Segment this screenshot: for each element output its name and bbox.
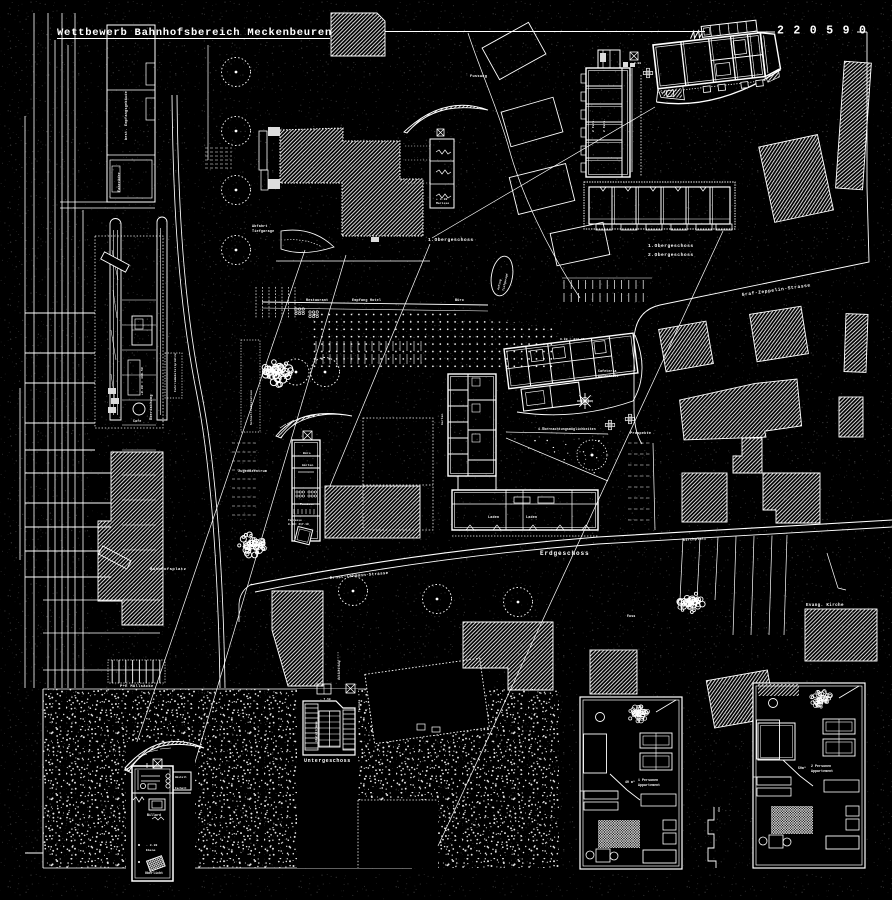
- svg-text:Laden: Laden: [488, 515, 499, 520]
- svg-text:2 Personen: 2 Personen: [811, 764, 831, 768]
- svg-text:2 2 0 5 9 0: 2 2 0 5 9 0: [777, 25, 867, 38]
- svg-text:Überdachung: Überdachung: [149, 394, 154, 420]
- svg-text:2.Obergeschoss: 2.Obergeschoss: [648, 252, 694, 258]
- svg-text:40 m²: 40 m²: [625, 780, 635, 784]
- svg-text:Büro: Büro: [455, 298, 464, 303]
- svg-text:- 7.50: - 7.50: [320, 698, 331, 701]
- svg-text:Evang. Kirche: Evang. Kirche: [806, 603, 844, 608]
- svg-text:Oberlicht: Oberlicht: [145, 871, 163, 875]
- svg-text:1.Obergeschoss: 1.Obergeschoss: [428, 237, 474, 243]
- svg-text:Billard: Billard: [147, 813, 161, 817]
- svg-text:Technik: Technik: [357, 699, 361, 712]
- svg-text:Tiefgarage: Tiefgarage: [252, 229, 274, 234]
- svg-text:Abstell: Abstell: [175, 775, 187, 779]
- svg-text:Marisse: Marisse: [436, 201, 449, 205]
- svg-text:2 Pers.: 2 Pers.: [592, 119, 595, 132]
- svg-text:Abstellräume: Abstellräume: [314, 721, 318, 742]
- svg-text:Fussweg: Fussweg: [470, 75, 487, 79]
- svg-text:Tennisse: Tennisse: [300, 502, 314, 506]
- svg-text:Fahrradabstellplätze: Fahrradabstellplätze: [173, 353, 177, 392]
- svg-text:Prospekte: Prospekte: [630, 431, 651, 436]
- svg-text:+ 3.30: + 3.30: [436, 198, 448, 201]
- svg-text:Aufenthalt: Aufenthalt: [598, 374, 619, 378]
- svg-text:0.00: 0.00: [634, 62, 641, 65]
- svg-text:1.Obergeschoss: 1.Obergeschoss: [648, 243, 694, 249]
- svg-text:Appartement: Appartement: [638, 783, 660, 787]
- svg-text:best. Empfangsgebäude: best. Empfangsgebäude: [124, 91, 129, 140]
- svg-text:Gärten: Gärten: [302, 463, 314, 467]
- svg-text:Appartement: Appartement: [811, 769, 833, 773]
- svg-text:Cafeteria: Cafeteria: [598, 369, 617, 373]
- svg-text:Abfahrt: Abfahrt: [252, 224, 268, 229]
- svg-text:- 3.30: - 3.30: [146, 844, 158, 847]
- svg-text:4.Übernachtungsmöglichkeiten: 4.Übernachtungsmöglichkeiten: [538, 427, 596, 431]
- svg-text:Cafe: Cafe: [133, 419, 141, 423]
- svg-text:Jugendzentrum: Jugendzentrum: [238, 469, 267, 474]
- svg-text:Terrasse: Terrasse: [288, 519, 302, 522]
- svg-text:Erdgeschoss: Erdgeschoss: [540, 550, 590, 557]
- svg-text:9.00 = 417.33: 9.00 = 417.33: [560, 338, 585, 341]
- svg-text:50m²: 50m²: [798, 766, 806, 770]
- svg-text:Ebene: Ebene: [146, 848, 156, 852]
- svg-text:Anlieferung: Anlieferung: [337, 660, 341, 680]
- svg-text:Laden: Laden: [526, 515, 537, 520]
- svg-text:Bahnhofsplatz: Bahnhofsplatz: [150, 567, 187, 572]
- svg-text:Fachett: Fachett: [175, 786, 187, 790]
- svg-text:Restaurant: Restaurant: [306, 298, 328, 303]
- svg-text:2 Pers.: 2 Pers.: [603, 119, 606, 132]
- svg-text:1 Personen: 1 Personen: [638, 778, 658, 782]
- svg-text:Untergeschoss: Untergeschoss: [304, 758, 351, 764]
- svg-text:Fahrräder: Fahrräder: [117, 172, 122, 192]
- svg-text:P+E Müllsäcke: P+E Müllsäcke: [120, 684, 154, 689]
- svg-text:Wettbewerb Bahnhofsbereich Mec: Wettbewerb Bahnhofsbereich Meckenbeuren: [57, 27, 332, 39]
- svg-text:Empfang Hotel: Empfang Hotel: [352, 298, 381, 303]
- svg-text:+0.00 = 416.50: +0.00 = 416.50: [141, 367, 144, 395]
- svg-text:Fuss: Fuss: [627, 614, 635, 618]
- svg-text:0.00= 417.18: 0.00= 417.18: [288, 523, 309, 526]
- svg-text:Garten: Garten: [441, 413, 444, 425]
- svg-text:Büro: Büro: [303, 451, 311, 455]
